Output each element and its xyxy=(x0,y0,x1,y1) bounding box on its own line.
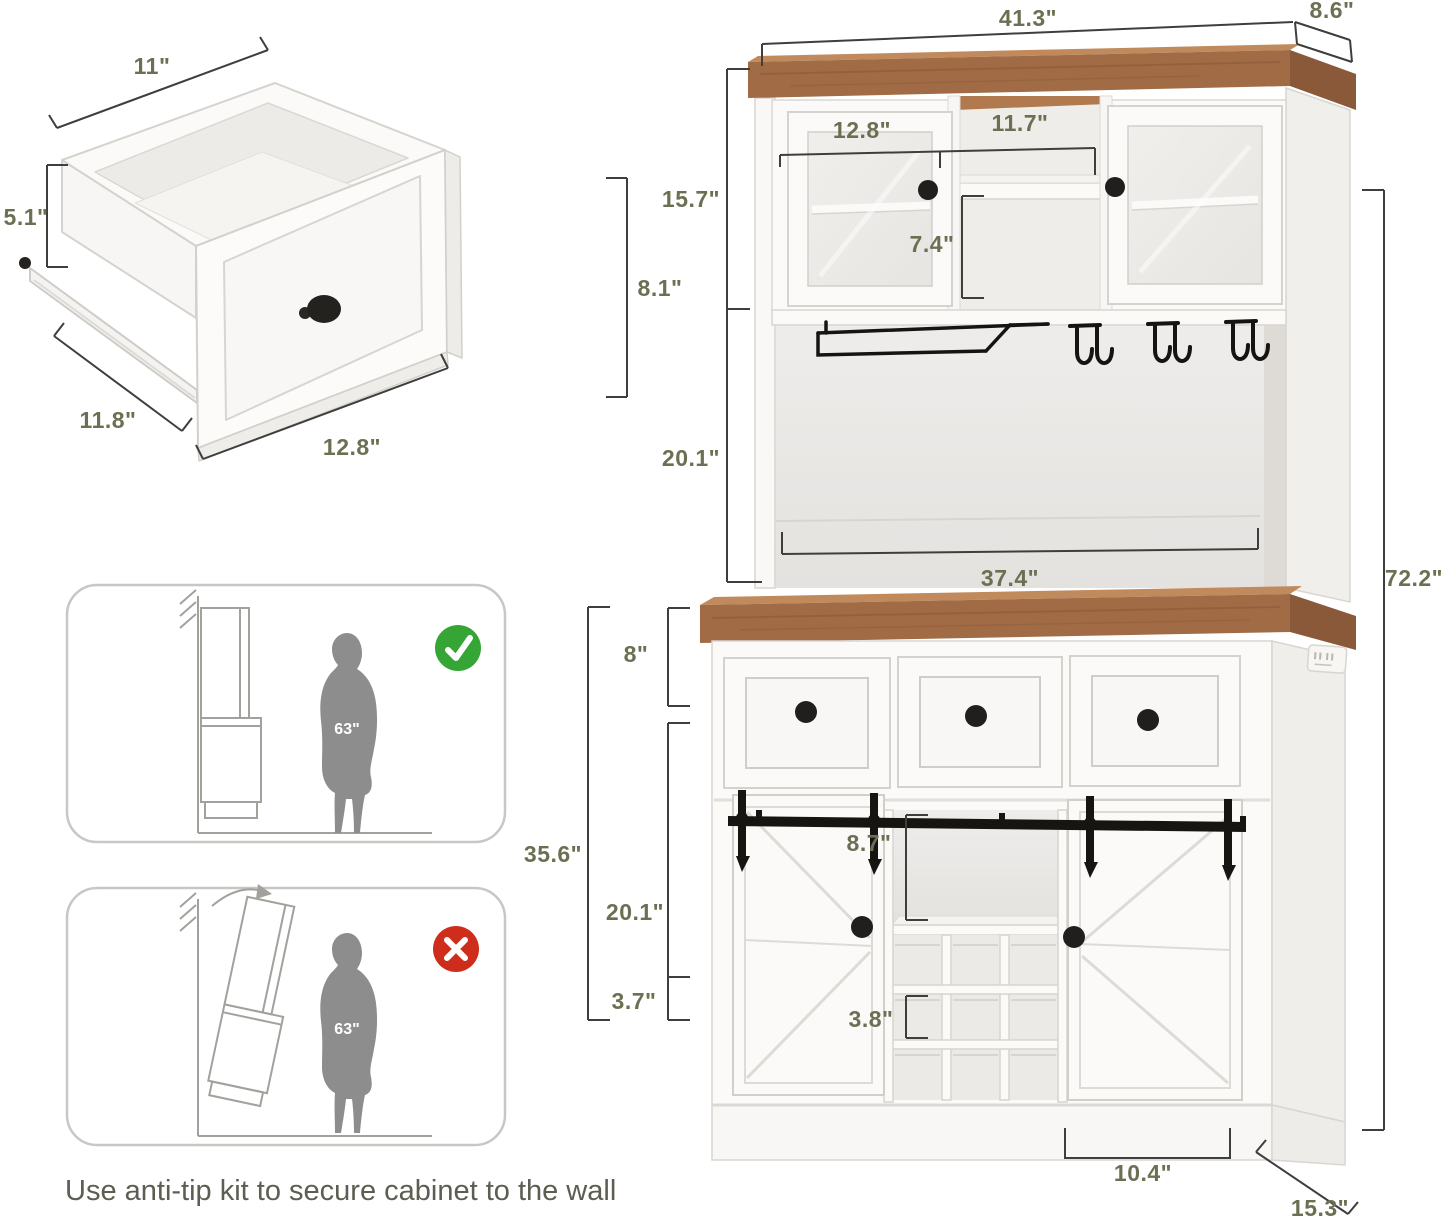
drawer-knob xyxy=(1137,709,1159,731)
person-height-label: 63" xyxy=(334,721,359,738)
dim-cabinet-top-depth: 8.6" xyxy=(1310,0,1355,23)
glass-door-knob xyxy=(1105,177,1125,197)
drawer-knob xyxy=(795,701,817,723)
diagram-canvas: 63" 63" Use anti-tip kit to secure c xyxy=(0,0,1445,1223)
dim-drawer-side-height: 5.1" xyxy=(4,204,49,230)
dim-cabinet-width: 41.3" xyxy=(999,5,1057,31)
person-height-label: 63" xyxy=(334,1021,359,1038)
anti-tip-panel-tip: 63" xyxy=(67,884,505,1145)
hutch-right-side-panel xyxy=(1286,88,1350,602)
door-knob xyxy=(1063,926,1085,948)
power-outlet xyxy=(1307,645,1347,674)
cabinet-drawer xyxy=(724,658,890,788)
anti-tip-panel-ok: 63" xyxy=(67,585,505,842)
x-icon xyxy=(433,926,479,972)
dim-hutch-middle-shelf-height: 7.4" xyxy=(910,231,955,257)
check-icon xyxy=(435,625,481,671)
product-dimension-diagram: 63" 63" Use anti-tip kit to secure c xyxy=(0,0,1445,1223)
hutch-open-back xyxy=(772,318,1264,588)
cabinet-drawer xyxy=(1070,656,1240,786)
dim-drawer-section-height: 8" xyxy=(624,641,649,667)
dim-lower-cabinet-height: 35.6" xyxy=(524,841,582,867)
dim-hutch-cabinet-height: 15.7" xyxy=(662,186,720,212)
dim-hutch-open-space-height: 20.1" xyxy=(662,445,720,471)
dim-cabinet-depth: 15.3" xyxy=(1291,1195,1349,1221)
dim-door-section-height: 20.1" xyxy=(606,899,664,925)
anti-tip-caption: Use anti-tip kit to secure cabinet to th… xyxy=(65,1175,616,1207)
dim-total-height: 72.2" xyxy=(1385,565,1443,591)
dim-drawer-width: 12.8" xyxy=(323,434,381,460)
wine-storage-section xyxy=(884,810,1067,1102)
lower-cabinet-right-side xyxy=(1272,641,1345,1122)
drawer-illustration xyxy=(19,37,627,461)
glass-door-knob xyxy=(918,180,938,200)
dim-drawer-depth: 11.8" xyxy=(80,407,137,433)
drawer-row xyxy=(714,656,1270,800)
door-knob xyxy=(851,916,873,938)
dim-drawer-front-height: 8.1" xyxy=(638,275,683,301)
dim-base-kick-width: 10.4" xyxy=(1114,1160,1172,1186)
dim-wine-cubby-height: 3.8" xyxy=(849,1006,894,1032)
drawer-knob xyxy=(965,705,987,727)
dim-drawer-top-width: 11" xyxy=(134,53,171,79)
cabinet-base xyxy=(712,1105,1345,1165)
dim-base-height: 3.7" xyxy=(612,988,657,1014)
cabinet-drawer xyxy=(898,657,1062,787)
hutch-right-glass-door xyxy=(1105,106,1282,304)
dim-hutch-middle-compartment-width: 11.7" xyxy=(992,110,1049,136)
dim-open-cubby-height: 8.7" xyxy=(847,830,892,856)
dim-hutch-left-compartment-width: 12.8" xyxy=(833,117,891,143)
dim-hutch-open-space-width: 37.4" xyxy=(981,565,1039,591)
